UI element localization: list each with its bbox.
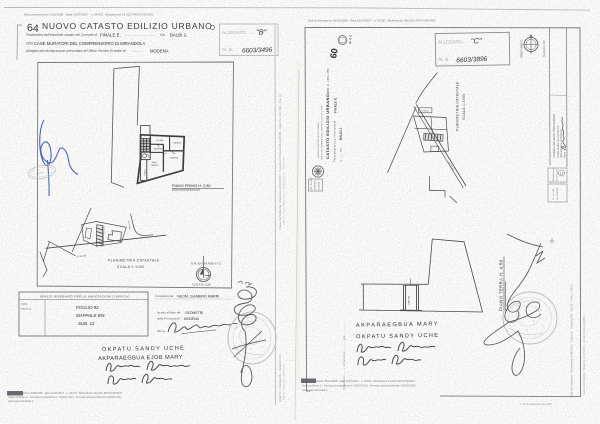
svg-text:FINALE E.: FINALE E. — [334, 97, 338, 113]
svg-text:CANTINA: CANTINA — [408, 296, 411, 305]
svg-text:PROT. N.: PROT. N. — [21, 307, 32, 311]
svg-text:D / 3 n. 118: D / 3 n. 118 — [553, 188, 555, 200]
svg-text:SCALA 1:2000: SCALA 1:2000 — [462, 94, 466, 120]
svg-text:di variazione: di variazione — [556, 168, 559, 181]
svg-text:..............................: ........................................… — [438, 61, 480, 66]
svg-text:Planimetria di u.i.u. in Comun: Planimetria di u.i.u. in Comune di — [333, 121, 337, 162]
svg-text:SCALA DI 1:200: SCALA DI 1:200 — [192, 283, 211, 287]
svg-text:CASE MURATORI DEL COMPRENSORIO: CASE MURATORI DEL COMPRENSORIO DI MIRAND… — [34, 41, 145, 46]
svg-text:Firma: Firma — [564, 151, 567, 158]
svg-text:SCALA 1:1000: SCALA 1:1000 — [117, 265, 145, 269]
svg-text:SCALA DI 1:200: SCALA DI 1:200 — [543, 40, 546, 57]
svg-text:Via: Via — [160, 33, 165, 37]
svg-text:del 30/10/68: del 30/10/68 — [557, 187, 559, 200]
svg-text:www.agenziaentrate.it: www.agenziaentrate.it — [8, 399, 34, 403]
svg-text:Dichiarazione: Dichiarazione — [552, 167, 555, 181]
svg-text:Planimetria dell'immobile situ: Planimetria dell'immobile situato nel Co… — [26, 33, 97, 37]
svg-text:PRANZO: PRANZO — [151, 164, 160, 167]
svg-text:ERARIALE: ERARIALE — [314, 180, 317, 190]
svg-text:Compilato dal GEOM. PIER GASPA: Compilato dal GEOM. PIER GASPARI — [552, 114, 556, 158]
svg-text:NUOVO CATASTO EDILIZIO URBANO: NUOVO CATASTO EDILIZIO URBANO — [42, 21, 213, 31]
svg-text:GEOM. GUARINO MARRI: GEOM. GUARINO MARRI — [177, 294, 219, 298]
svg-text:BALBI 2.: BALBI 2. — [170, 33, 187, 38]
svg-text:"C": "C" — [471, 36, 482, 45]
svg-text:AMMINISTRAZIONE DELLE FINANZE: AMMINISTRAZIONE DELLE FINANZE — [317, 121, 320, 158]
svg-text:DIREZIONE GENERALE DEL CATASTO: DIREZIONE GENERALE DEL CATASTO E DEI SS.… — [321, 104, 324, 160]
svg-text:ORIENTAMENTO: ORIENTAMENTO — [191, 262, 222, 266]
svg-text:MOD. 57 - Catasto Edilizio Urb: MOD. 57 - Catasto Edilizio Urbano - Plan… — [283, 157, 286, 225]
svg-text:Dati presentazione 3045/1966 -: Dati presentazione 3045/1966 - Data 19/0… — [8, 391, 122, 395]
svg-text:CATASTO EDILIZIO URBANO: CATASTO EDILIZIO URBANO — [325, 94, 330, 159]
svg-text:"B": "B" — [256, 28, 267, 37]
svg-text:SCALA: SCALA — [144, 169, 147, 176]
svg-text:Firma: Firma — [157, 329, 165, 333]
svg-text:DATA: DATA — [21, 302, 28, 306]
svg-text:MOD. 57 - Parte III/IV - Subal: MOD. 57 - Parte III/IV - Subalterno 2 — [283, 364, 286, 400]
svg-text:www.agenziaentrate.it: www.agenziaentrate.it — [302, 388, 328, 392]
svg-text:.....: ..... — [492, 40, 497, 44]
svg-text:60: 60 — [328, 48, 340, 60]
svg-text:SPAZIO RISERVATO PER LE ANNOTA: SPAZIO RISERVATO PER LE ANNOTAZIONI D'UF… — [40, 294, 130, 298]
svg-text:CUCINA: CUCINA — [156, 139, 164, 142]
svg-text:n. 14 di accatastamento 1968: n. 14 di accatastamento 1968 — [520, 403, 552, 406]
svg-text:ORIENTAMENTO: ORIENTAMENTO — [521, 39, 524, 58]
svg-text:della Provincia di: della Provincia di — [157, 317, 180, 321]
svg-text:FOGLIO 92: FOGLIO 92 — [76, 305, 99, 310]
svg-text:..............................: ..................................... — [222, 52, 255, 56]
svg-text:MODENA: MODENA — [318, 181, 321, 190]
svg-text:Allegata alla dichiarazione pr: Allegata alla dichiarazione presentata a… — [25, 49, 126, 53]
svg-text:Catasto dei Fabbricati - Situa: Catasto dei Fabbricati - Situazione al 1… — [583, 315, 586, 395]
svg-text:ALLEGATO: ALLEGATO — [222, 30, 246, 35]
svg-text:Catasto dei Fabbricati - Situa: Catasto dei Fabbricati - Situazione al 1… — [278, 94, 282, 230]
svg-text:PLANIMETRIA CATASTALE: PLANIMETRIA CATASTALE — [456, 81, 460, 131]
svg-text:PIANO TERRA H. 4,50: PIANO TERRA H. 4,50 — [499, 259, 504, 311]
svg-text:CAMERA: CAMERA — [173, 142, 182, 145]
svg-text:..............................: .................................. — [125, 33, 155, 37]
svg-text:SUB. 13: SUB. 13 — [78, 321, 95, 326]
svg-text:Scala richiesta 1: - Formato d: Scala richiesta 1: - Formato di acquisiz… — [8, 395, 121, 399]
svg-text:Dati presentazione 30/10/1968: Dati presentazione 30/10/1968 - Data 19/… — [302, 379, 415, 383]
svg-text:........: ........ — [461, 40, 469, 44]
svg-text:GEOMETRI: GEOMETRI — [185, 311, 203, 315]
svg-text:Totale del Fabbricato - Consis: Totale del Fabbricato - Consistenza di M… — [571, 284, 574, 398]
svg-text:ALLEGATO: ALLEGATO — [438, 39, 462, 44]
svg-text:PIANO PRIMO H. 2,80: PIANO PRIMO H. 2,80 — [172, 184, 211, 188]
svg-text:Dati presentazione 30/10/1968: Dati presentazione 30/10/1968 - Data 19/… — [308, 19, 436, 23]
svg-text:BALBI 2: BALBI 2 — [339, 127, 343, 140]
svg-text:Compilato dal: Compilato dal — [155, 294, 174, 298]
svg-text:SALA: SALA — [152, 161, 158, 164]
svg-text:(MOD. 13 - 1/68 A. 1355): (MOD. 13 - 1/68 A. 1355) — [327, 68, 330, 94]
svg-text:Dati presentazione 3/10/1968 -: Dati presentazione 3/10/1968 - Data 19/0… — [24, 13, 154, 17]
svg-text:n. ........ via: n. ........ via — [339, 148, 343, 162]
svg-text:UFF. TECNICO: UFF. TECNICO — [311, 176, 313, 190]
svg-text:MODENA: MODENA — [150, 48, 169, 53]
svg-text:Foglio 92 - Particella 891 - S: Foglio 92 - Particella 891 - Subalterno … — [278, 354, 282, 402]
svg-text:INGRESSO: INGRESSO — [154, 149, 165, 151]
svg-text:13: 13 — [560, 172, 564, 176]
svg-text:Iscritto all'albo dei: Iscritto all'albo dei — [157, 311, 181, 315]
svg-text:FINALE E.: FINALE E. — [100, 33, 121, 38]
svg-text:MAPPALE 891: MAPPALE 891 — [76, 313, 106, 318]
svg-text:al. 6-6: al. 6-6 — [348, 34, 353, 44]
svg-text:CAMERA: CAMERA — [170, 157, 179, 160]
svg-text:.............: ............. — [131, 49, 143, 53]
svg-text:PLANIMETRIA CATASTALE: PLANIMETRIA CATASTALE — [108, 259, 160, 263]
svg-text:MODENA: MODENA — [184, 317, 200, 321]
svg-text:..........: .......... — [246, 31, 255, 35]
svg-text:Scala richiesta 1: - Formato d: Scala richiesta 1: - Formato di acquisiz… — [302, 384, 415, 388]
svg-text:PIAZZA: PIAZZA — [422, 110, 429, 113]
svg-text:Ditta: Ditta — [26, 42, 33, 46]
